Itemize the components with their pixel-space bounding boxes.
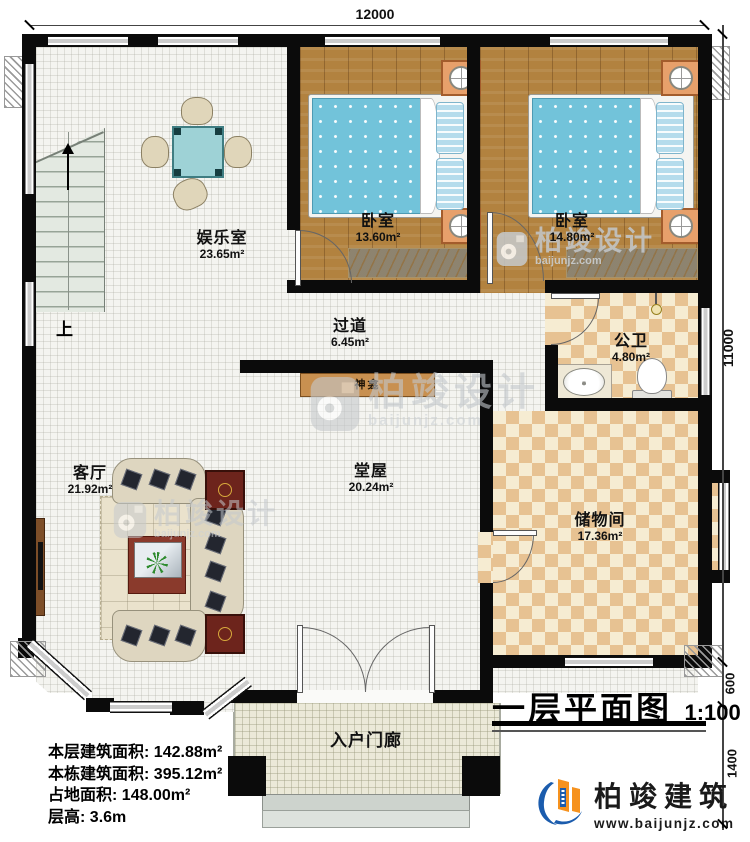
cushion [205, 591, 227, 613]
cushion [149, 625, 171, 647]
bed2-pillow-1 [656, 102, 684, 154]
room-area: 6.45m² [331, 336, 369, 350]
emblem-icon [218, 627, 232, 641]
storage-door-floor [478, 532, 493, 583]
side-table-bottom [205, 614, 245, 654]
chair-right [224, 136, 252, 168]
stat-row: 本层建筑面积: 142.88m² [48, 742, 222, 764]
room-area: 13.60m² [356, 231, 401, 245]
stat-label: 本层建筑面积: [48, 744, 149, 761]
sink-basin [563, 368, 605, 396]
stat-value: 148.00m² [122, 787, 191, 804]
window-top-bed2 [550, 36, 668, 46]
section-hatch-right [684, 645, 724, 677]
title-underline-thick [492, 721, 706, 726]
sofa-bottom [112, 610, 206, 662]
room-label-hall: 堂屋 20.24m² [349, 463, 394, 495]
window-left-2 [24, 282, 35, 346]
bed1-pillow-2 [436, 158, 464, 210]
room-label-bedroom2: 卧室 14.80m² [550, 213, 595, 245]
brand-logo-icon [534, 775, 586, 827]
brand-block: 柏竣建筑 www.baijunjz.com [534, 775, 735, 831]
pendant-cord [655, 293, 657, 304]
room-name: 卧室 [361, 213, 395, 230]
window-storage-bottom [565, 657, 653, 667]
bump-wall-top [698, 470, 730, 483]
cushion [175, 469, 197, 491]
watermark-name: 柏竣设计 [154, 498, 278, 529]
bed1-pillow-1 [436, 102, 464, 154]
room-name: 公卫 [614, 333, 648, 350]
entry-door-leaf-right [429, 625, 435, 693]
bed2-nightstand-top [661, 60, 701, 96]
floor-plan: 上 [0, 0, 750, 842]
watermark-site: baijunjz.com [368, 412, 540, 429]
room-name: 储物间 [574, 512, 625, 529]
window-top-1 [48, 36, 128, 46]
game-table [172, 126, 224, 178]
watermark-site: baijunjz.com [535, 255, 655, 267]
bed2-nightstand-bottom [661, 208, 701, 244]
emblem-icon [218, 483, 232, 497]
window-bump-right [718, 483, 730, 570]
cushion [149, 469, 171, 491]
room-label-porch: 入户门廊 [330, 731, 402, 751]
stat-row: 层高: 3.6m [48, 807, 222, 829]
stat-row: 本栋建筑面积: 395.12m² [48, 764, 222, 786]
wall-hall-bottom-right [433, 690, 480, 703]
porch-pier-right [462, 756, 500, 796]
stat-row: 占地面积: 148.00m² [48, 785, 222, 807]
wall-bath-top [545, 280, 712, 293]
storage-door-leaf [493, 530, 537, 536]
stairs-up-label: 上 [56, 315, 73, 340]
brand-website: www.baijunjz.com [594, 816, 735, 831]
dim-top-value: 12000 [340, 6, 410, 22]
plant-icon [146, 552, 168, 574]
bump-wall-bottom [698, 570, 730, 583]
stat-value: 142.88m² [154, 744, 223, 761]
room-name: 娱乐室 [196, 230, 247, 247]
bathroom-door-leaf [551, 293, 600, 299]
window-top-bed1 [325, 36, 440, 46]
watermark-logo-icon [308, 374, 362, 434]
bay-pier-3 [170, 701, 204, 715]
bed2-mattress [532, 98, 650, 214]
chair-left [141, 136, 169, 168]
bed2-pillow-2 [656, 158, 684, 210]
lamp-icon [669, 214, 693, 238]
watermark: 柏竣设计 baijunjz.com [112, 500, 278, 540]
brand-name: 柏竣建筑 [594, 775, 735, 815]
window-left-1 [24, 64, 35, 194]
dim-line-top [30, 25, 706, 27]
room-name: 堂屋 [354, 463, 388, 480]
stairs-arrow-shaft [67, 152, 69, 190]
watermark-site: baijunjz.com [154, 528, 278, 540]
porch-pier-left [228, 756, 266, 796]
pendant-light [651, 304, 662, 315]
room-label-storage: 储物间 17.36m² [574, 512, 625, 544]
stat-label: 占地面积: [48, 787, 117, 804]
stairs-arrow-head [62, 143, 74, 154]
wall-bed1-bed2 [467, 47, 480, 280]
wall-bed1-left [287, 47, 300, 230]
bay-window-bottom [110, 701, 172, 713]
room-label-entertainment: 娱乐室 23.65m² [196, 230, 247, 262]
cushion [175, 625, 197, 647]
room-area: 14.80m² [550, 231, 595, 245]
area-statistics: 本层建筑面积: 142.88m² 本栋建筑面积: 395.12m² 占地面积: … [48, 742, 222, 828]
tv-screen [38, 542, 43, 590]
watermark-logo-icon [495, 228, 529, 270]
room-name: 入户门廊 [330, 731, 402, 750]
title-underline-thin [492, 730, 706, 732]
bedroom1-door-leaf [295, 230, 301, 286]
bed1-wardrobe [348, 248, 476, 278]
room-label-hallway: 过道 6.45m² [331, 318, 369, 350]
entry-door-leaf-left [297, 625, 303, 693]
room-name: 卧室 [555, 213, 589, 230]
window-top-2 [158, 36, 238, 46]
stat-value: 3.6m [90, 809, 126, 826]
bedroom2-door-leaf [487, 212, 493, 284]
room-label-bedroom1: 卧室 13.60m² [356, 213, 401, 245]
porch-step-2 [262, 810, 470, 828]
window-bath-right [700, 308, 711, 395]
bed1-mattress [312, 98, 430, 214]
section-hatch-top-left [4, 56, 24, 108]
stat-value: 395.12m² [154, 766, 223, 783]
chair-top [181, 97, 213, 125]
room-name: 客厅 [73, 465, 107, 482]
room-area: 23.65m² [196, 248, 247, 262]
room-area: 17.36m² [574, 530, 625, 544]
wall-bath-bottom [545, 398, 712, 411]
lamp-icon [669, 66, 693, 90]
watermark-name: 柏竣设计 [368, 372, 540, 414]
room-name: 过道 [333, 318, 367, 335]
room-area: 4.80m² [612, 351, 650, 365]
dim-right-value: 11000 [720, 326, 736, 370]
room-area: 21.92m² [68, 483, 113, 497]
room-area: 20.24m² [349, 481, 394, 495]
room-label-living: 客厅 21.92m² [68, 465, 113, 497]
room-label-bathroom: 公卫 4.80m² [612, 333, 650, 365]
coffee-table [128, 536, 186, 594]
watermark-logo-icon [112, 500, 148, 540]
stat-label: 层高: [48, 809, 85, 826]
cushion [121, 625, 143, 647]
stat-label: 本栋建筑面积: [48, 766, 149, 783]
watermark: 柏竣设计 baijunjz.com [308, 374, 540, 434]
cushion [205, 561, 227, 583]
cushion [121, 469, 143, 491]
